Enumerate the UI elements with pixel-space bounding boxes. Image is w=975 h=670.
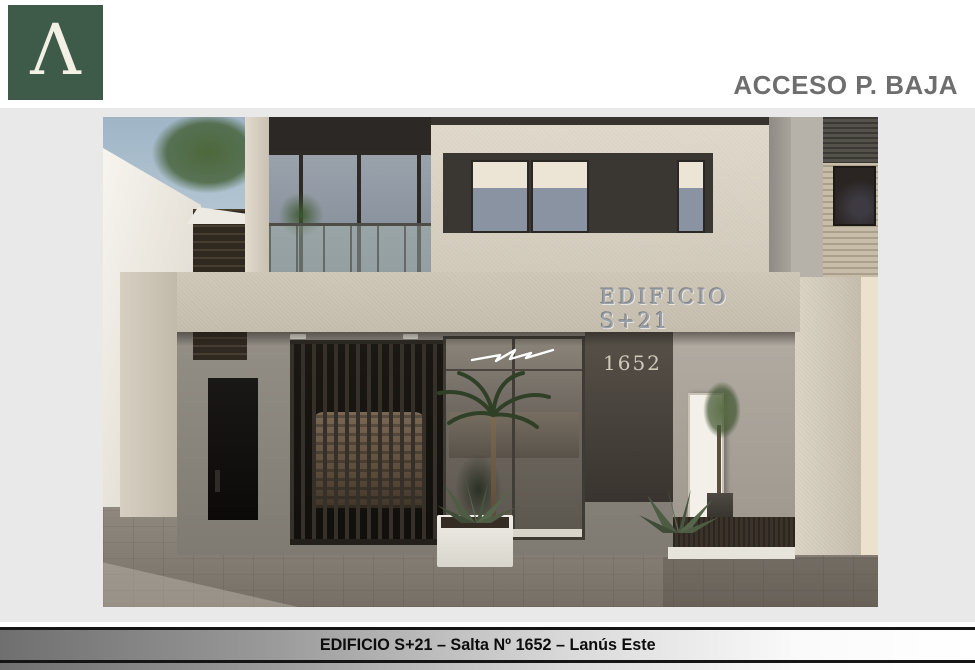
roof-edge — [431, 117, 771, 125]
ground-shadow — [663, 557, 878, 607]
palm-fronds — [431, 367, 556, 439]
side-wall-strip — [769, 117, 791, 277]
white-curb — [668, 547, 795, 559]
caption-bar-tail — [0, 663, 975, 670]
balcony-ceiling — [269, 117, 431, 151]
upper-window — [531, 160, 589, 233]
brochure-page: { "header": { "logo_glyph": "Λ", "title"… — [0, 0, 975, 670]
agave-plant — [633, 485, 723, 533]
building-sign: EDIFICIO S+21 — [600, 285, 800, 333]
panel-slot — [215, 470, 220, 492]
neighbor-window — [833, 166, 876, 226]
side-wall-strip — [791, 117, 823, 277]
caption-bar: EDIFICIO S+21 – Salta Nº 1652 – Lanús Es… — [0, 627, 975, 663]
portal-left-column — [120, 272, 177, 517]
street-number: 1652 — [603, 351, 662, 375]
beam-shadow — [177, 332, 795, 346]
facade-column — [245, 117, 269, 277]
upper-window — [471, 160, 529, 233]
upper-window — [677, 160, 705, 233]
dark-service-panel — [208, 378, 258, 520]
garage-gate-bars — [290, 340, 443, 545]
agave-plant — [431, 475, 521, 523]
right-pillar-edge — [861, 277, 878, 555]
lambda-logo-icon: Λ — [30, 3, 81, 98]
caption-text: EDIFICIO S+21 – Salta Nº 1652 – Lanús Es… — [320, 630, 656, 660]
door-logo-icon — [469, 345, 559, 367]
building-render-image: EDIFICIO S+21 1652 — [103, 117, 878, 607]
potted-tree-foliage — [699, 375, 745, 445]
slate-band — [823, 117, 878, 163]
glass-railing — [269, 223, 431, 273]
company-logo: Λ — [8, 5, 103, 100]
page-title: ACCESO P. BAJA — [733, 70, 958, 101]
